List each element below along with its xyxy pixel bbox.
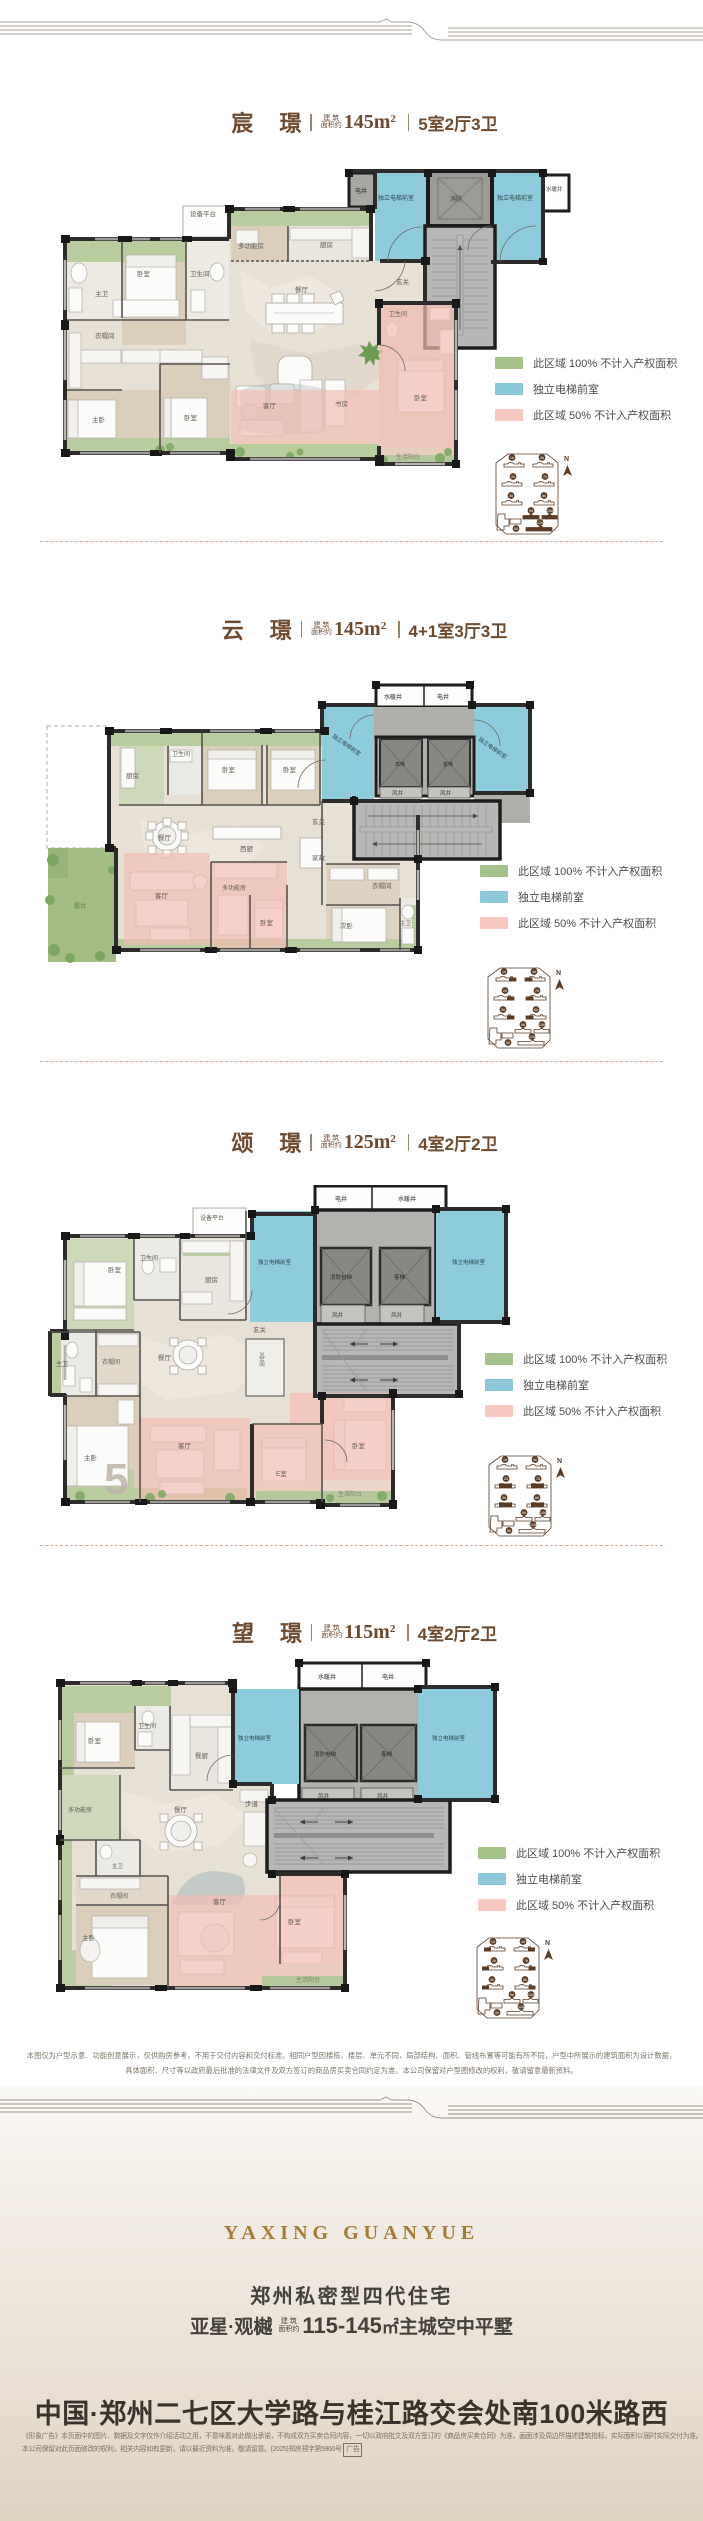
svg-text:独立电梯前室: 独立电梯前室 <box>432 1734 466 1742</box>
svg-text:卧室: 卧室 <box>283 765 297 774</box>
svg-text:E室: E室 <box>276 1469 287 1478</box>
svg-text:客梯: 客梯 <box>394 1273 406 1281</box>
svg-text:卧室: 卧室 <box>260 918 274 927</box>
svg-text:步道: 步道 <box>245 1799 259 1808</box>
svg-text:卧室: 卧室 <box>352 1441 366 1450</box>
svg-text:5: 5 <box>104 1455 128 1504</box>
svg-text:卧室: 卧室 <box>108 1265 122 1274</box>
svg-text:主卧: 主卧 <box>92 415 106 424</box>
svg-text:餐厅: 餐厅 <box>158 1353 172 1362</box>
svg-text:独立电梯前室: 独立电梯前室 <box>497 194 533 202</box>
svg-text:客梯: 客梯 <box>381 1750 393 1758</box>
svg-text:客厅: 客厅 <box>213 1897 227 1906</box>
svg-text:卧室: 卧室 <box>222 765 236 774</box>
svg-text:客梯: 客梯 <box>443 761 453 768</box>
svg-text:卧室: 卧室 <box>88 1736 102 1745</box>
svg-text:餐厨: 餐厨 <box>195 1751 209 1760</box>
svg-text:X空间: X空间 <box>258 1352 265 1368</box>
svg-text:餐厅: 餐厅 <box>158 833 172 842</box>
svg-text:卧室: 卧室 <box>137 269 151 278</box>
svg-text:卧室: 卧室 <box>414 393 428 402</box>
svg-text:露台: 露台 <box>74 902 86 910</box>
svg-text:玄关: 玄关 <box>312 817 326 826</box>
svg-text:厨房: 厨房 <box>205 1275 218 1284</box>
svg-text:主卫: 主卫 <box>400 919 412 927</box>
svg-text:生活阳台: 生活阳台 <box>338 1490 362 1498</box>
svg-text:卫生间: 卫生间 <box>140 1254 158 1262</box>
svg-text:卫生间: 卫生间 <box>138 1722 156 1730</box>
svg-text:厨房: 厨房 <box>320 240 333 249</box>
svg-text:水暖井: 水暖井 <box>318 1673 336 1681</box>
svg-text:主卫: 主卫 <box>112 1862 124 1870</box>
svg-text:客厅: 客厅 <box>178 1441 192 1450</box>
svg-text:水暖井: 水暖井 <box>398 1195 416 1203</box>
svg-text:客厅: 客厅 <box>155 891 169 900</box>
svg-text:衣帽间: 衣帽间 <box>110 1892 128 1900</box>
svg-text:书房: 书房 <box>335 399 348 408</box>
svg-text:风井: 风井 <box>440 789 452 797</box>
svg-text:卧室: 卧室 <box>288 1917 302 1926</box>
svg-text:玄关: 玄关 <box>396 277 410 286</box>
svg-text:卧室: 卧室 <box>184 413 198 422</box>
svg-text:风井: 风井 <box>332 1311 344 1319</box>
svg-text:水暖井: 水暖井 <box>546 185 563 193</box>
svg-text:多功能房: 多功能房 <box>68 1806 92 1814</box>
svg-text:衣帽间: 衣帽间 <box>372 881 392 890</box>
svg-text:水暖井: 水暖井 <box>384 693 402 701</box>
svg-text:主卧: 主卧 <box>84 1453 98 1462</box>
svg-text:风井: 风井 <box>392 789 404 797</box>
svg-text:独立电梯前室: 独立电梯前室 <box>258 1258 292 1266</box>
svg-text:西厨: 西厨 <box>240 845 254 853</box>
svg-text:厨房: 厨房 <box>126 771 139 780</box>
svg-text:消防: 消防 <box>450 195 462 203</box>
svg-text:高梯: 高梯 <box>395 761 405 768</box>
svg-text:独立电梯前室: 独立电梯前室 <box>378 194 414 202</box>
svg-text:衣帽间: 衣帽间 <box>95 331 115 340</box>
svg-text:电井: 电井 <box>355 187 367 195</box>
svg-text:客厅: 客厅 <box>263 401 277 410</box>
svg-text:卫生间: 卫生间 <box>190 269 210 278</box>
svg-text:消防包梯: 消防包梯 <box>330 1273 353 1281</box>
svg-text:电井: 电井 <box>437 693 449 701</box>
svg-text:玄关: 玄关 <box>253 1325 267 1334</box>
svg-text:独立电梯前室: 独立电梯前室 <box>452 1258 486 1266</box>
svg-text:主卧: 主卧 <box>82 1933 96 1942</box>
svg-text:家政: 家政 <box>312 853 326 862</box>
svg-text:卫生间: 卫生间 <box>389 310 407 318</box>
svg-text:风井: 风井 <box>391 1311 403 1319</box>
svg-text:多功能房: 多功能房 <box>238 241 264 250</box>
svg-text:设备平台: 设备平台 <box>200 1214 224 1222</box>
svg-text:餐厅: 餐厅 <box>295 285 309 294</box>
svg-text:独立电梯前室: 独立电梯前室 <box>238 1734 272 1742</box>
svg-text:电井: 电井 <box>382 1673 394 1681</box>
svg-text:卫生间: 卫生间 <box>172 750 190 758</box>
svg-text:主卫: 主卫 <box>95 289 109 298</box>
svg-text:生活阳台: 生活阳台 <box>396 453 420 461</box>
svg-text:餐厅: 餐厅 <box>174 1805 188 1814</box>
svg-text:衣帽间: 衣帽间 <box>102 1358 120 1366</box>
svg-text:消防电梯: 消防电梯 <box>314 1750 337 1758</box>
svg-text:设备平台: 设备平台 <box>190 209 216 218</box>
svg-text:多功能房: 多功能房 <box>222 884 246 892</box>
svg-text:生活阳台: 生活阳台 <box>296 1976 320 1984</box>
svg-text:电井: 电井 <box>335 1195 347 1203</box>
svg-text:次卧: 次卧 <box>340 921 354 930</box>
svg-text:主卫: 主卫 <box>56 1360 68 1368</box>
